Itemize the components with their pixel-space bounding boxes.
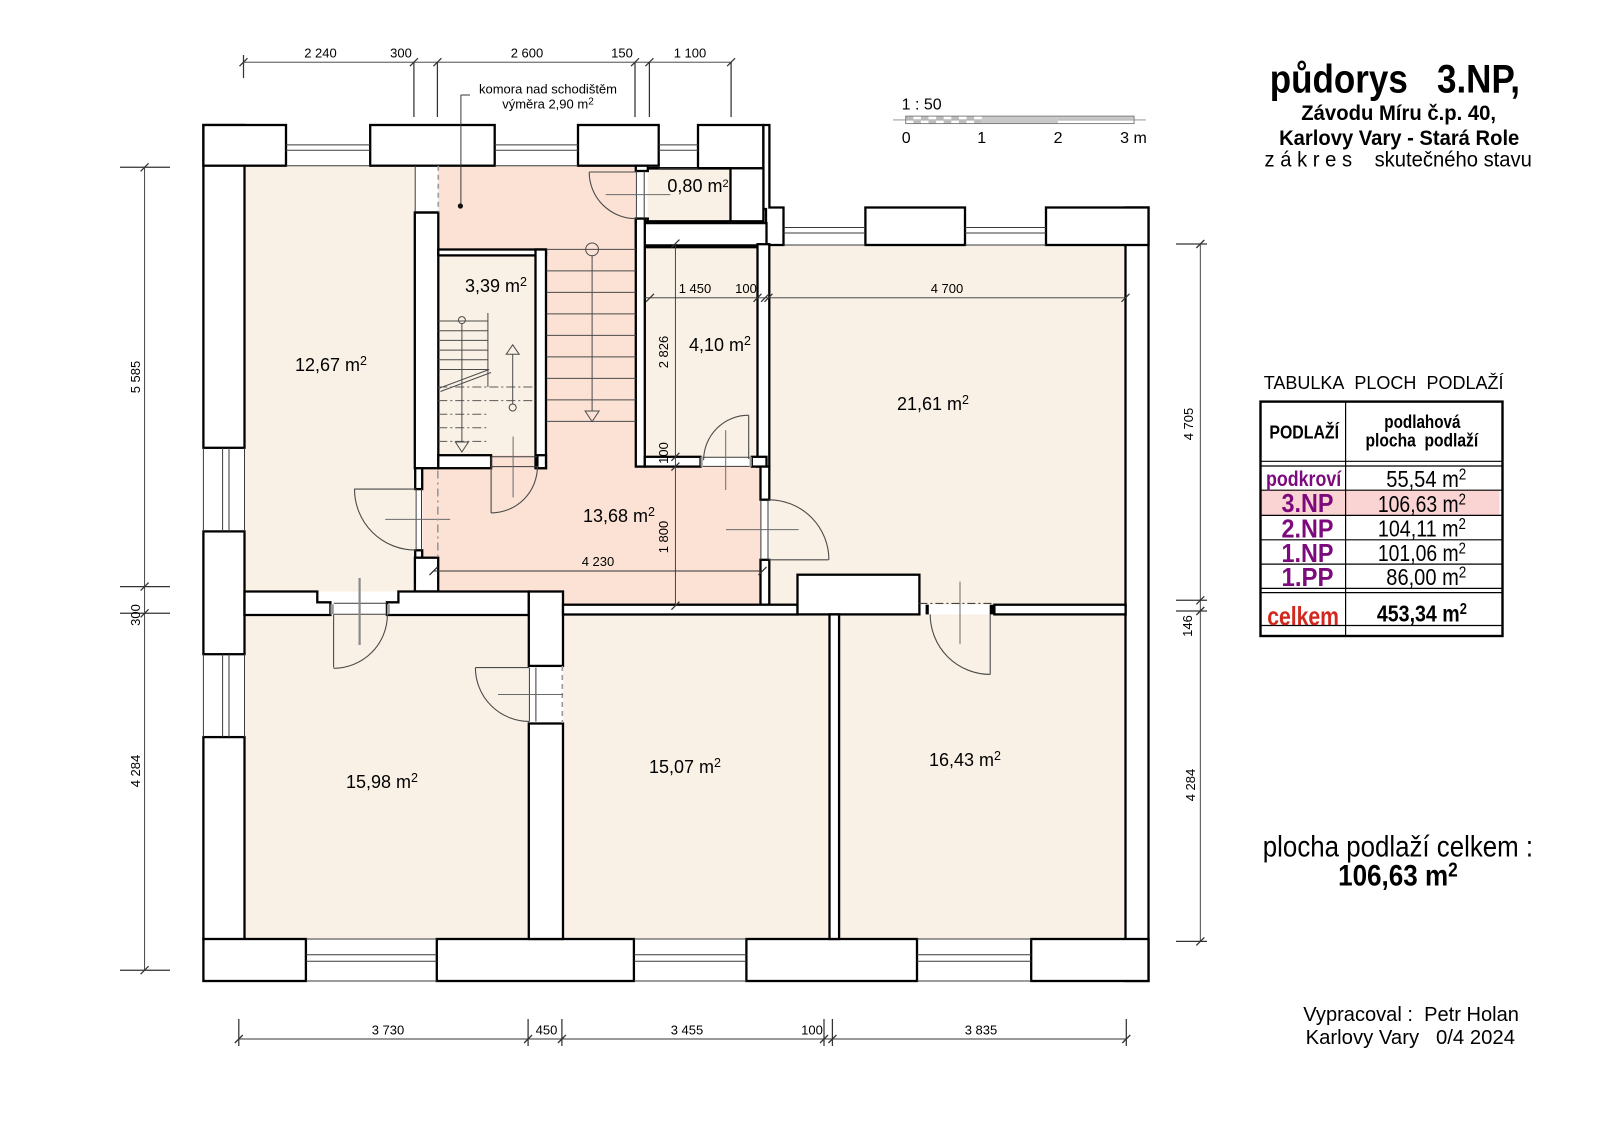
svg-text:4 284: 4 284 [128,755,143,788]
svg-text:Závodu Míru č.p. 40,: Závodu Míru č.p. 40, [1301,102,1496,125]
svg-text:2 826: 2 826 [656,336,671,369]
svg-text:4 284: 4 284 [1183,769,1198,802]
svg-text:101,06 m2: 101,06 m2 [1378,540,1466,566]
svg-text:300: 300 [128,604,143,626]
svg-text:4 700: 4 700 [931,281,964,296]
svg-text:PODLAŽÍ: PODLAŽÍ [1269,422,1339,443]
svg-text:106,63 m2: 106,63 m2 [1378,491,1466,517]
svg-text:1 800: 1 800 [656,521,671,554]
svg-text:3 730: 3 730 [372,1023,405,1038]
svg-text:3 835: 3 835 [965,1023,998,1038]
svg-text:12,67 m2: 12,67 m2 [295,354,367,375]
svg-text:4,10 m2: 4,10 m2 [689,334,751,355]
svg-text:150: 150 [611,46,633,61]
svg-text:146: 146 [1180,615,1195,637]
svg-text:0: 0 [902,130,911,147]
svg-text:2 240: 2 240 [304,46,337,61]
svg-text:2 600: 2 600 [511,46,544,61]
svg-text:100: 100 [801,1023,823,1038]
svg-text:15,98 m2: 15,98 m2 [346,771,418,792]
svg-text:453,34 m2: 453,34 m2 [1377,601,1467,627]
svg-text:3,39 m2: 3,39 m2 [465,275,527,296]
svg-text:13,68 m2: 13,68 m2 [583,505,655,526]
svg-text:55,54 m2: 55,54 m2 [1386,466,1466,492]
svg-text:106,63 m2: 106,63 m2 [1338,859,1458,892]
svg-text:5 585: 5 585 [128,361,143,394]
svg-text:100: 100 [656,442,671,464]
svg-text:4 705: 4 705 [1181,408,1196,441]
svg-text:TABULKA PLOCH PODLAŽÍ: TABULKA PLOCH PODLAŽÍ [1264,373,1504,393]
svg-text:86,00 m2: 86,00 m2 [1386,564,1466,590]
svg-text:Karlovy Vary 0/4 2024: Karlovy Vary 0/4 2024 [1306,1026,1515,1049]
svg-text:21,61 m2: 21,61 m2 [897,393,969,414]
svg-text:1.PP: 1.PP [1282,562,1334,592]
svg-text:2: 2 [1054,130,1063,147]
svg-text:1 450: 1 450 [679,281,712,296]
svg-text:15,07 m2: 15,07 m2 [649,756,721,777]
svg-text:výměra 2,90 m2: výměra 2,90 m2 [502,97,594,112]
svg-text:Karlovy Vary - Stará Role: Karlovy Vary - Stará Role [1279,127,1519,150]
svg-text:4 230: 4 230 [582,554,615,569]
svg-text:104,11 m2: 104,11 m2 [1378,515,1466,541]
svg-text:16,43 m2: 16,43 m2 [929,749,1001,770]
svg-text:půdorys 3.NP,: půdorys 3.NP, [1270,57,1520,101]
svg-text:komora nad schodištěm: komora nad schodištěm [479,82,617,97]
svg-text:celkem: celkem [1267,601,1339,631]
svg-text:450: 450 [536,1023,558,1038]
svg-text:100: 100 [735,281,757,296]
svg-text:3 m: 3 m [1120,130,1147,147]
svg-text:plocha podlaží: plocha podlaží [1366,429,1479,450]
svg-text:0,80 m2: 0,80 m2 [667,176,728,196]
svg-text:z á k r e s skutečného stav: z á k r e s skutečného stavu [1265,148,1532,171]
svg-text:1: 1 [977,130,986,147]
svg-text:Vypracoval : Petr Holan: Vypracoval : Petr Holan [1303,1003,1519,1026]
svg-text:300: 300 [390,46,412,61]
svg-text:3 455: 3 455 [671,1023,704,1038]
svg-text:1 100: 1 100 [674,46,707,61]
svg-text:1 : 50: 1 : 50 [902,97,942,114]
